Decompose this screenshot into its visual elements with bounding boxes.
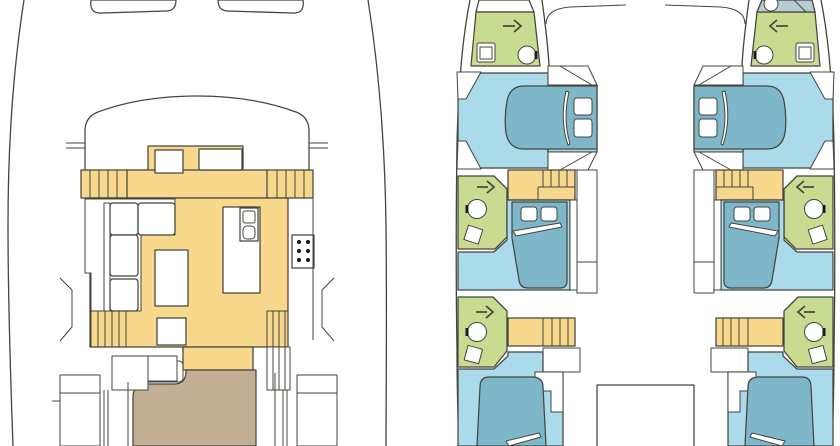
sink-basin-icon	[243, 211, 255, 223]
cockpit-steps	[267, 347, 290, 390]
starboard-bow-shower	[757, 0, 815, 12]
aft-companionway-landing	[183, 347, 253, 370]
deck-plans-canvas	[0, 0, 840, 446]
cockpit-bench	[112, 356, 148, 390]
hatch-right	[199, 149, 242, 170]
bow-sunpad-starboard	[218, 0, 303, 13]
sidedeck-notch-port	[60, 278, 72, 341]
sofa-cushion	[110, 279, 138, 311]
sink-basin-icon	[243, 226, 255, 239]
aft-seat-block	[157, 318, 186, 345]
sofa-cushion	[110, 203, 138, 235]
shower-icon	[764, 0, 778, 11]
starboard-hull	[665, 0, 835, 446]
sidedeck-notch-starboard	[322, 278, 334, 341]
transom-step-port	[60, 375, 100, 446]
sofa-cushion	[110, 235, 138, 276]
forward-seat-band	[81, 170, 313, 198]
hatch-left	[155, 150, 183, 173]
dinette-table	[155, 250, 188, 306]
bridgedeck-aft-outline	[597, 385, 694, 446]
stove-icon	[292, 235, 314, 268]
bow-sunpad-port	[91, 0, 176, 13]
deck-plans-svg	[0, 0, 840, 446]
hull-outline-left	[8, 0, 24, 446]
transom-step-starboard	[297, 375, 337, 446]
sofa-chaise-cushion	[138, 203, 175, 235]
hull-outline-right	[368, 0, 386, 446]
cockpit-bench	[148, 356, 177, 381]
lower-deck-plan	[456, 0, 835, 446]
sofa-backrest	[104, 203, 110, 311]
port-hull	[456, 0, 626, 446]
main-deck-plan	[8, 0, 386, 446]
